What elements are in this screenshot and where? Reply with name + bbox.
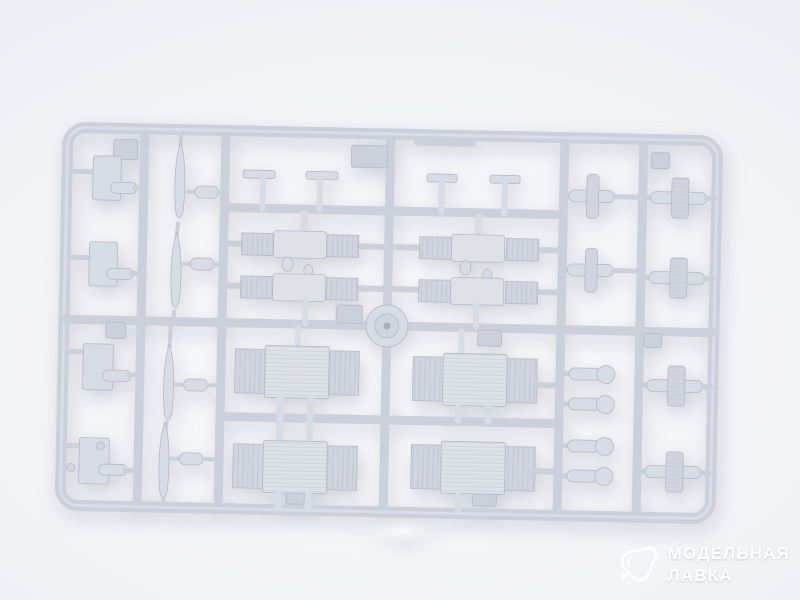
watermark-line2: ЛАВКА — [668, 565, 790, 587]
watermark-text: МОДЕЛЬНАЯ ЛАВКА — [668, 543, 790, 587]
glare-highlight — [366, 518, 438, 544]
watermark-logo: МОДЕЛЬНАЯ ЛАВКА — [619, 543, 790, 587]
upper-left-wing-parts — [222, 170, 390, 325]
gem-logo-icon — [619, 543, 659, 587]
center-hub — [366, 305, 409, 348]
sprue-image — [0, 0, 800, 600]
upper-right-wing-parts — [387, 173, 564, 329]
photo-canvas: МОДЕЛЬНАЯ ЛАВКА — [0, 0, 800, 600]
watermark-line1: МОДЕЛЬНАЯ — [668, 543, 790, 565]
